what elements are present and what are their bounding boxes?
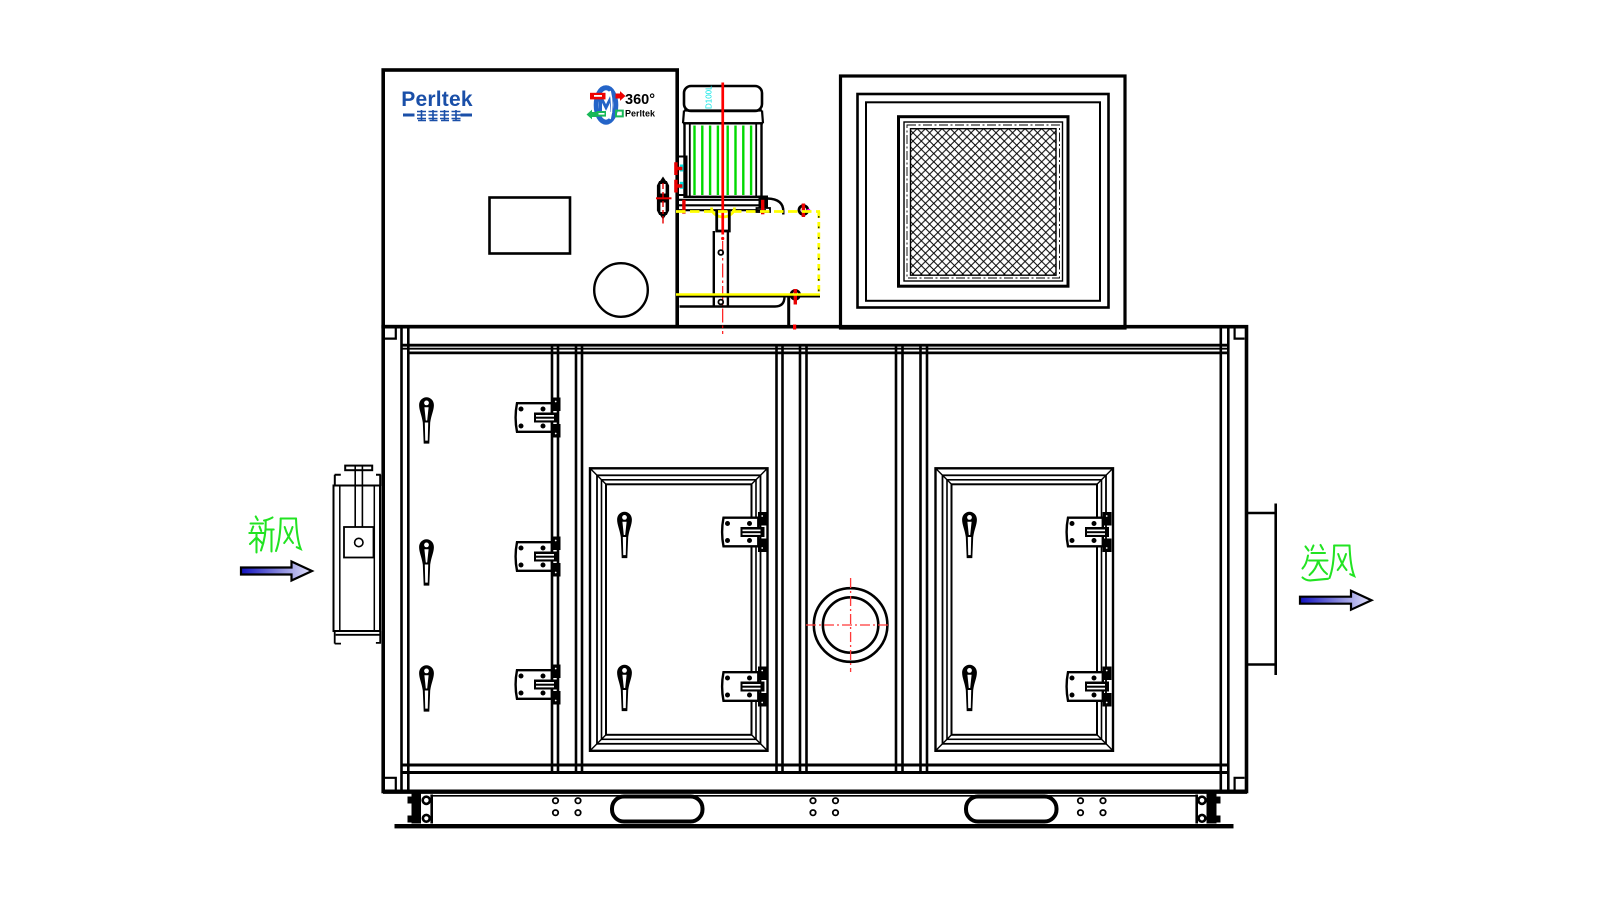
svg-text:Perltek: Perltek — [401, 88, 473, 111]
svg-text:Perltek: Perltek — [625, 109, 656, 119]
svg-text:D100L: D100L — [705, 85, 714, 109]
svg-text:360°: 360° — [625, 92, 655, 108]
